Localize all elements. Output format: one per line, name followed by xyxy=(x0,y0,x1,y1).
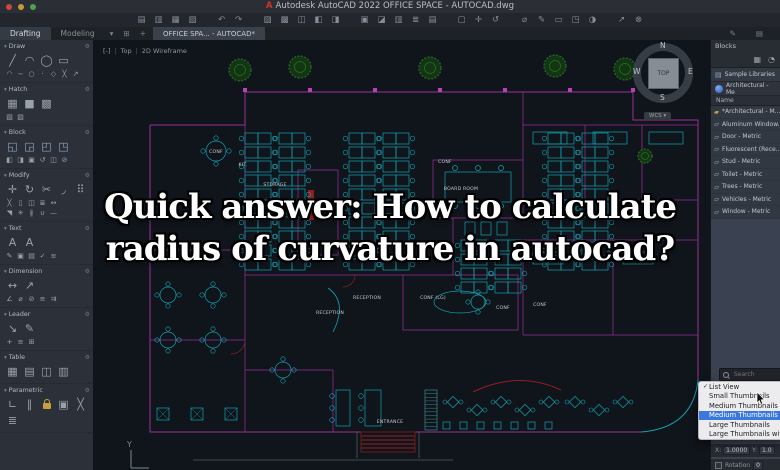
tool-palette: ▾Draw⚙╱◠◯▭◠∼○·◇╳↗▾Hatch⚙▦■▩▧▨▾Block⚙◱◲◰◳… xyxy=(0,40,94,470)
hatch-gradient-icon[interactable]: ▩ xyxy=(38,96,55,112)
svg-text:Y: Y xyxy=(126,440,132,449)
trim-icon[interactable]: ✂ xyxy=(38,182,55,198)
section-title: Leader xyxy=(9,311,85,318)
ellipse-icon[interactable]: ○ xyxy=(26,69,37,79)
render-icon[interactable]: ◑ xyxy=(587,14,598,26)
visual-style-icon[interactable]: ◳ xyxy=(570,14,581,26)
dim-radius-icon[interactable]: ⌀ xyxy=(15,294,26,304)
palette-section-hatch: ▾Hatch⚙▦■▩▧▨ xyxy=(0,83,93,126)
name-column-header[interactable]: Name xyxy=(711,96,780,106)
viewcube-east[interactable]: E xyxy=(688,67,693,76)
share-icon[interactable]: ↗ xyxy=(616,14,627,26)
hatch-solid-icon[interactable]: ■ xyxy=(21,96,38,112)
text-single-icon[interactable]: A xyxy=(21,235,38,251)
gear-icon[interactable]: ⚙ xyxy=(85,86,90,93)
tab-drafting[interactable]: Drafting xyxy=(0,27,51,40)
dim-aligned-icon[interactable]: ↗ xyxy=(21,278,38,294)
menu-item-medium-thumbnails[interactable]: Medium Thumbnails xyxy=(699,401,780,411)
palette-section-modify: ▾Modify⚙✛↻✂◞⠿╳▯◫≣↔◥✳∦∪— xyxy=(0,169,93,222)
fillet-modify-icon[interactable]: ◞ xyxy=(55,182,72,198)
hatch-edit-icon[interactable]: ▨ xyxy=(15,112,26,122)
menu-item-large-thumbnails[interactable]: Large Thumbnails xyxy=(699,420,780,430)
wcs-selector[interactable]: WCS ▾ xyxy=(644,112,671,120)
gear-icon[interactable]: ⚙ xyxy=(85,311,90,318)
viewcube-north[interactable]: N xyxy=(660,41,666,50)
section-collapse-icon[interactable]: ▾ xyxy=(4,44,7,50)
match-properties-icon[interactable]: ▥ xyxy=(393,14,404,26)
section-collapse-icon[interactable]: ▾ xyxy=(4,269,7,275)
block-icon: ▱ xyxy=(714,208,719,216)
gear-icon[interactable]: ⚙ xyxy=(85,268,90,275)
attribute-icon[interactable]: ◧ xyxy=(4,155,15,165)
measure-icon[interactable]: ⌀ xyxy=(519,14,530,26)
join-icon[interactable]: ∪ xyxy=(37,208,48,218)
mleader-add-icon[interactable]: + xyxy=(4,337,15,347)
mleader-edit-icon[interactable]: ✎ xyxy=(21,321,38,337)
palette-section-block: ▾Block⚙◱◲◰◳◧◨▣↺◫⊘ xyxy=(0,126,93,169)
block-attach-icon[interactable]: ▣ xyxy=(26,155,37,165)
block-item[interactable]: ▱Door - Metric xyxy=(711,131,780,144)
dim-angular-icon[interactable]: ∠ xyxy=(4,294,15,304)
palette-section-table: ▾Table⚙▦▤◫▥ xyxy=(0,351,93,384)
menu-item-small-thumbnails[interactable]: Small Thumbnails xyxy=(699,392,780,402)
section-title: Dimension xyxy=(9,268,85,275)
section-collapse-icon[interactable]: ▾ xyxy=(4,312,7,318)
section-title: Modify xyxy=(9,172,85,179)
blocks-list: ▰*Architectural - M...▱Aluminum Window..… xyxy=(711,106,780,219)
reference-icon[interactable]: ▤ xyxy=(751,29,768,38)
blocks-panel-title: Blocks xyxy=(711,40,780,52)
explode-icon[interactable]: ✳ xyxy=(15,208,26,218)
search-icon xyxy=(723,372,729,378)
menu-item-large-thumbnails-with[interactable]: Large Thumbnails with xyxy=(699,430,780,440)
block-icon: ▱ xyxy=(714,158,719,166)
gear-icon[interactable]: ⚙ xyxy=(85,129,90,136)
mleader-align-icon[interactable]: ≡ xyxy=(15,337,26,347)
plan-label-conf-lg-: CONF (LG) xyxy=(420,295,446,301)
dim-baseline-icon[interactable]: ≡ xyxy=(37,294,48,304)
named-views-icon[interactable]: ▭ xyxy=(553,14,564,26)
menu-item-list-view[interactable]: ✓List View xyxy=(699,382,780,392)
mtext-icon[interactable]: A xyxy=(4,235,21,251)
block-item-label: Stud - Metric xyxy=(722,158,760,165)
block-item[interactable]: ▱Vehicles - Metric xyxy=(711,194,780,207)
sign-out-icon[interactable]: ⊗ xyxy=(633,14,644,26)
palette-section-draw: ▾Draw⚙╱◠◯▭◠∼○·◇╳↗ xyxy=(0,40,93,83)
array-icon[interactable]: ⠿ xyxy=(72,182,89,198)
tab-bar: Drafting Modeling ▾ ⊞ + OFFICE SPA... - … xyxy=(0,27,780,40)
recent-blocks-icon[interactable]: ◔ xyxy=(768,55,775,64)
attribute-edit-icon[interactable]: ◨ xyxy=(15,155,26,165)
xline-icon[interactable]: ╳ xyxy=(59,69,70,79)
plan-label-storage: STORAGE xyxy=(263,182,286,188)
block-item[interactable]: ▱Aluminum Window... xyxy=(711,119,780,132)
point-icon[interactable]: · xyxy=(37,69,48,79)
library-dropdown[interactable]: Architectural - Me xyxy=(711,82,780,96)
block-item-label: Trees - Metric xyxy=(722,183,762,190)
block-item-label: Window - Metric xyxy=(722,208,770,215)
copy-icon[interactable]: ▯ xyxy=(15,198,26,208)
coincident-icon[interactable]: ∟ xyxy=(4,397,21,413)
publish-icon[interactable]: ◫ xyxy=(296,14,307,26)
block-replace-icon[interactable]: ◫ xyxy=(48,155,59,165)
erase-icon[interactable]: ╳ xyxy=(4,198,15,208)
viewcube-south[interactable]: S xyxy=(660,93,665,102)
section-collapse-icon[interactable]: ▾ xyxy=(4,87,7,93)
insertion-point-row: X: 1.0000 Y: 1.0 xyxy=(711,444,780,457)
menu-item-label: Medium Thumbnails xyxy=(709,402,778,410)
block-item[interactable]: ▱Window - Metric xyxy=(711,206,780,219)
gear-icon[interactable]: ⚙ xyxy=(85,387,90,394)
palette-section-text: ▾Text⚙AA✎▣▤✓≡ xyxy=(0,222,93,265)
viewcube[interactable]: N S W E TOP xyxy=(630,40,696,106)
hatch-boundary-icon[interactable]: ▧ xyxy=(4,112,15,122)
block-item[interactable]: ▱Trees - Metric xyxy=(711,181,780,194)
block-item[interactable]: ▱Toilet - Metric xyxy=(711,169,780,182)
block-icon: ▱ xyxy=(714,145,719,153)
libraries-icon: ▤ xyxy=(715,71,722,79)
check-icon: ✓ xyxy=(702,383,709,390)
tool-sets-icon[interactable]: ✎ xyxy=(725,29,741,38)
section-title: Hatch xyxy=(9,86,85,93)
section-collapse-icon[interactable]: ▾ xyxy=(4,173,7,179)
fillet-icon[interactable]: ◠ xyxy=(4,69,15,79)
search-input[interactable] xyxy=(732,370,776,379)
menu-item-label: Large Thumbnails xyxy=(709,421,770,429)
workspace-dropdown-icon[interactable]: ▾ xyxy=(105,27,119,40)
annotate-icon[interactable]: ✎ xyxy=(536,14,547,26)
circle-icon[interactable]: ◯ xyxy=(38,53,55,69)
purge-icon[interactable]: ⊘ xyxy=(59,155,70,165)
block-icon: ▱ xyxy=(714,170,719,178)
lengthen-icon[interactable]: — xyxy=(48,208,59,218)
menu-item-label: Large Thumbnails with xyxy=(709,430,780,438)
datalink-icon[interactable]: ◫ xyxy=(38,364,55,380)
section-collapse-icon[interactable]: ▾ xyxy=(4,355,7,361)
block-sync-icon[interactable]: ↺ xyxy=(37,155,48,165)
pan-icon[interactable]: ✛ xyxy=(473,14,484,26)
spell-check-icon[interactable]: ✓ xyxy=(37,251,48,261)
start-tab-grid-icon[interactable]: ⊞ xyxy=(118,27,134,40)
block-icon: ▰ xyxy=(714,108,719,116)
section-collapse-icon[interactable]: ▾ xyxy=(4,226,7,232)
arc-icon[interactable]: ◠ xyxy=(21,53,38,69)
menu-item-label: List View xyxy=(709,383,739,391)
mouse-cursor xyxy=(756,392,765,405)
text-align-icon[interactable]: ≡ xyxy=(48,251,59,261)
group-icon[interactable]: ▤ xyxy=(427,14,438,26)
plan-label-entrance: ENTRANCE xyxy=(377,419,403,425)
delete-constraint-icon[interactable]: ╳ xyxy=(72,397,89,413)
quick-access-toolbar: ▤▥▦▧↶↷▨▩◫◧◨▣◪▥≣▤▢✛↺⌀✎▭◳◑↗⊗ xyxy=(0,13,780,27)
rotate-icon[interactable]: ↻ xyxy=(21,182,38,198)
plan-label-reception: RECEPTION xyxy=(316,310,344,316)
table-icon[interactable]: ▦ xyxy=(4,364,21,380)
block-item[interactable]: ▱Stud - Metric xyxy=(711,156,780,169)
orbit-icon[interactable]: ↺ xyxy=(490,14,501,26)
write-block-icon[interactable]: ◰ xyxy=(38,139,55,155)
save-as-icon[interactable]: ▧ xyxy=(187,14,198,26)
ucs-icon: Y xyxy=(121,400,161,470)
lock-constraint-icon[interactable] xyxy=(38,397,55,413)
open-file-icon[interactable]: ▥ xyxy=(153,14,164,26)
scale-icon[interactable]: ◥ xyxy=(4,208,15,218)
plan-label-kit-: KIT. xyxy=(239,162,248,168)
block-item[interactable]: ▰*Architectural - M... xyxy=(711,106,780,119)
batch-plot-icon[interactable]: ◧ xyxy=(313,14,324,26)
dim-linear-icon[interactable]: ↔ xyxy=(4,278,21,294)
table-cell-icon[interactable]: ▤ xyxy=(21,364,38,380)
block-item-label: Toilet - Metric xyxy=(722,171,762,178)
gear-icon[interactable]: ⚙ xyxy=(85,354,90,361)
stretch-icon[interactable]: ↔ xyxy=(48,198,59,208)
mleader-collect-icon[interactable]: ⊞ xyxy=(26,337,37,347)
library-icon[interactable]: ▦ xyxy=(753,55,761,64)
viewcube-top-face[interactable]: TOP xyxy=(648,58,679,89)
y-value-field[interactable]: 1.0 xyxy=(759,446,775,455)
section-title: Block xyxy=(9,129,85,136)
plan-label-conf: CONF xyxy=(533,302,547,308)
table-export-icon[interactable]: ▥ xyxy=(55,364,72,380)
show-constraints-icon[interactable]: ≣ xyxy=(4,413,21,429)
gear-icon[interactable]: ⚙ xyxy=(85,225,90,232)
field-icon[interactable]: ▤ xyxy=(26,251,37,261)
rotation-checkbox[interactable] xyxy=(715,462,722,469)
plot-icon[interactable]: ▨ xyxy=(262,14,273,26)
section-title: Draw xyxy=(9,43,85,50)
thumbnails-context-menu: ✓List ViewSmall ThumbnailsMedium Thumbna… xyxy=(698,381,780,440)
select-window-icon[interactable]: ▢ xyxy=(456,14,467,26)
palette-section-leader: ▾Leader⚙↘✎+≡⊞ xyxy=(0,308,93,351)
plan-label-board-room: BOARD ROOM xyxy=(444,186,478,192)
plan-label-conf: CONF xyxy=(438,159,452,165)
rectangle-icon[interactable]: ▭ xyxy=(55,53,72,69)
offset-icon[interactable]: ≣ xyxy=(37,198,48,208)
plan-label-conf: CONF xyxy=(496,305,510,311)
palette-section-dimension: ▾Dimension⚙↔↗∠⌀⊘≡⇉ xyxy=(0,265,93,308)
create-block-icon[interactable]: ◲ xyxy=(21,139,38,155)
plan-label-conf: CONF xyxy=(209,149,223,155)
viewport-view-control[interactable]: Top xyxy=(110,47,131,55)
export-icon[interactable]: ◨ xyxy=(330,14,341,26)
library-globe-icon xyxy=(715,85,723,93)
ray-icon[interactable]: ↗ xyxy=(70,69,81,79)
floor-plan-drawing: KIT.STORAGECONFCONFBOARD ROOMRECEPTIONRE… xyxy=(93,40,710,470)
text-style-icon[interactable]: ▣ xyxy=(15,251,26,261)
save-file-icon[interactable]: ▦ xyxy=(170,14,181,26)
hatch-pattern-icon[interactable]: ▦ xyxy=(4,96,21,112)
line-icon[interactable]: ╱ xyxy=(4,53,21,69)
section-title: Parametric xyxy=(9,387,85,394)
viewport-controls: [-]Top2D Wireframe xyxy=(103,47,187,55)
window-title: AAutodesk AutoCAD 2022 OFFICE SPACE - AU… xyxy=(0,1,780,11)
block-item-label: Aluminum Window... xyxy=(722,121,780,128)
viewcube-west[interactable]: W xyxy=(633,67,640,76)
move-icon[interactable]: ✛ xyxy=(4,182,21,198)
drawing-canvas[interactable]: KIT.STORAGECONFCONFBOARD ROOMRECEPTIONRE… xyxy=(93,40,710,470)
blocks-search-field[interactable] xyxy=(719,368,780,381)
section-collapse-icon[interactable]: ▾ xyxy=(4,388,7,394)
paste-icon[interactable]: ▣ xyxy=(359,14,370,26)
dim-continue-icon[interactable]: ⇉ xyxy=(48,294,59,304)
autocad-window: AAutodesk AutoCAD 2022 OFFICE SPACE - AU… xyxy=(0,0,780,470)
block-icon: ▱ xyxy=(714,133,719,141)
drawing-file-tab[interactable]: OFFICE SPA... - AUTOCAD* xyxy=(153,27,265,40)
plan-label-reception: RECEPTION xyxy=(353,295,381,301)
rotation-row: Rotation 0 xyxy=(711,459,780,470)
autocad-logo-icon: A xyxy=(266,1,273,11)
parallel-constraint-icon[interactable]: ∥ xyxy=(21,397,38,413)
plot-preview-icon[interactable]: ▩ xyxy=(279,14,290,26)
mirror-icon[interactable]: ◫ xyxy=(26,198,37,208)
palette-section-parametric: ▾Parametric⚙∟∥▣╳≣ xyxy=(0,384,93,433)
x-value-field[interactable]: 1.0000 xyxy=(723,446,750,455)
mleader-icon[interactable]: ↘ xyxy=(4,321,21,337)
dim-diameter-icon[interactable]: ⊘ xyxy=(26,294,37,304)
gear-icon[interactable]: ⚙ xyxy=(85,43,90,50)
section-title: Table xyxy=(9,354,85,361)
polygon-icon[interactable]: ◇ xyxy=(48,69,59,79)
auto-constrain-icon[interactable]: ▣ xyxy=(55,397,72,413)
new-file-icon[interactable]: ▤ xyxy=(136,14,147,26)
layer-icon[interactable]: ≣ xyxy=(410,14,421,26)
new-drawing-tab-button[interactable]: + xyxy=(135,27,151,40)
gear-icon[interactable]: ⚙ xyxy=(85,172,90,179)
tab-modeling[interactable]: Modeling xyxy=(51,27,105,40)
spline-icon[interactable]: ∼ xyxy=(15,69,26,79)
copy-clip-icon[interactable]: ◪ xyxy=(376,14,387,26)
rotation-value-field[interactable]: 0 xyxy=(753,461,763,470)
redo-icon[interactable]: ↷ xyxy=(233,14,244,26)
menu-item-label: Medium Thumbnails with xyxy=(709,411,780,419)
break-icon[interactable]: ∦ xyxy=(26,208,37,218)
block-icon: ▱ xyxy=(714,120,719,128)
menu-item-medium-thumbnails-with[interactable]: Medium Thumbnails with xyxy=(699,411,780,421)
section-collapse-icon[interactable]: ▾ xyxy=(4,130,7,136)
block-item-label: Fluorescent (Rece... xyxy=(722,146,780,153)
section-title: Text xyxy=(9,225,85,232)
block-item[interactable]: ▱Fluorescent (Rece... xyxy=(711,144,780,157)
block-editor-icon[interactable]: ◳ xyxy=(55,139,72,155)
block-icon: ▱ xyxy=(714,183,719,191)
text-edit-icon[interactable]: ✎ xyxy=(4,251,15,261)
block-item-label: *Architectural - M... xyxy=(722,108,780,115)
sample-libraries-tab[interactable]: ▤ Sample Libraries xyxy=(711,68,780,82)
block-item-label: Door - Metric xyxy=(722,133,761,140)
undo-icon[interactable]: ↶ xyxy=(216,14,227,26)
block-item-label: Vehicles - Metric xyxy=(722,196,771,203)
title-bar: AAutodesk AutoCAD 2022 OFFICE SPACE - AU… xyxy=(0,0,780,14)
insert-block-icon[interactable]: ◱ xyxy=(4,139,21,155)
viewport-style-control[interactable]: 2D Wireframe xyxy=(132,47,187,55)
block-icon: ▱ xyxy=(714,195,719,203)
